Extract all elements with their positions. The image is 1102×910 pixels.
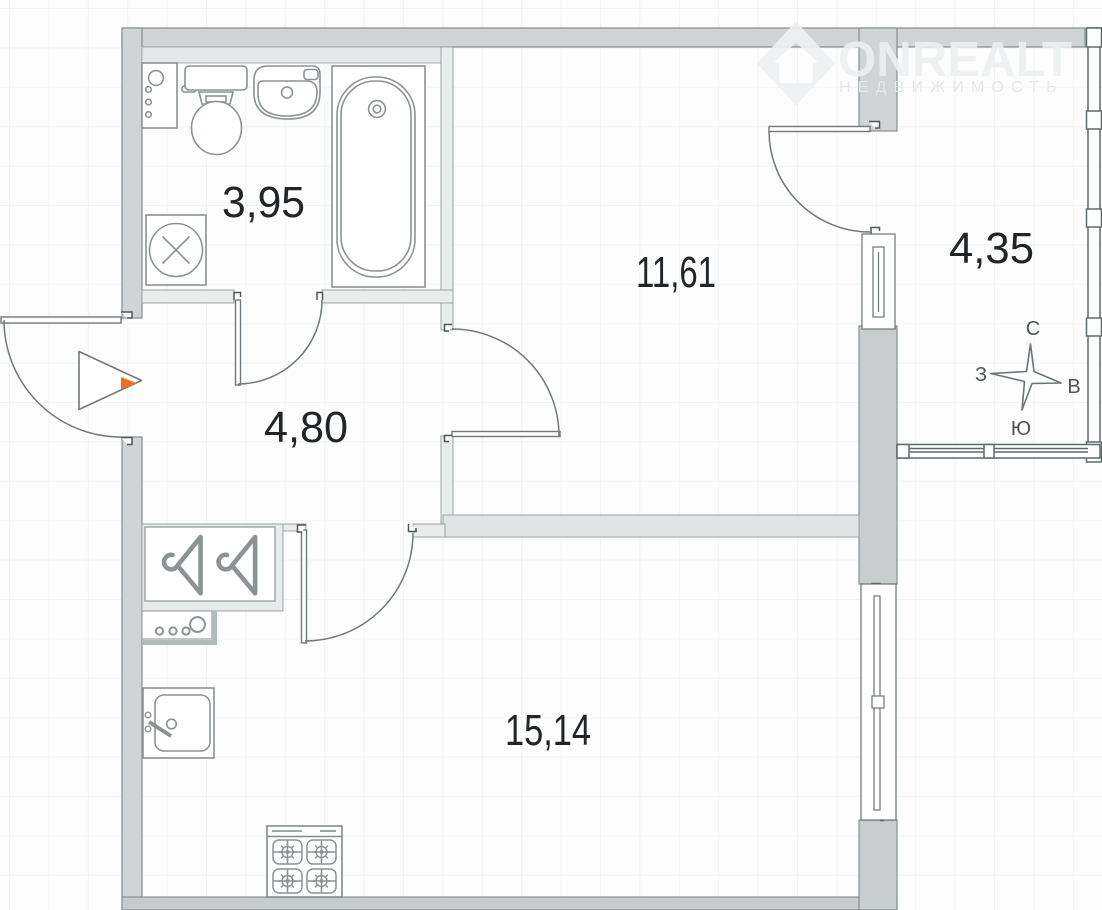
svg-text:НЕДВИЖИМОСТЬ: НЕДВИЖИМОСТЬ (839, 79, 1064, 96)
svg-text:4,80: 4,80 (264, 403, 348, 452)
svg-text:В: В (1067, 376, 1080, 398)
svg-text:15,14: 15,14 (505, 706, 591, 755)
svg-text:З: З (975, 364, 987, 386)
svg-text:Ю: Ю (1011, 418, 1031, 440)
svg-text:3,95: 3,95 (222, 178, 305, 227)
svg-text:11,61: 11,61 (636, 248, 716, 297)
svg-text:С: С (1026, 318, 1040, 340)
svg-text:4,35: 4,35 (949, 224, 1034, 273)
